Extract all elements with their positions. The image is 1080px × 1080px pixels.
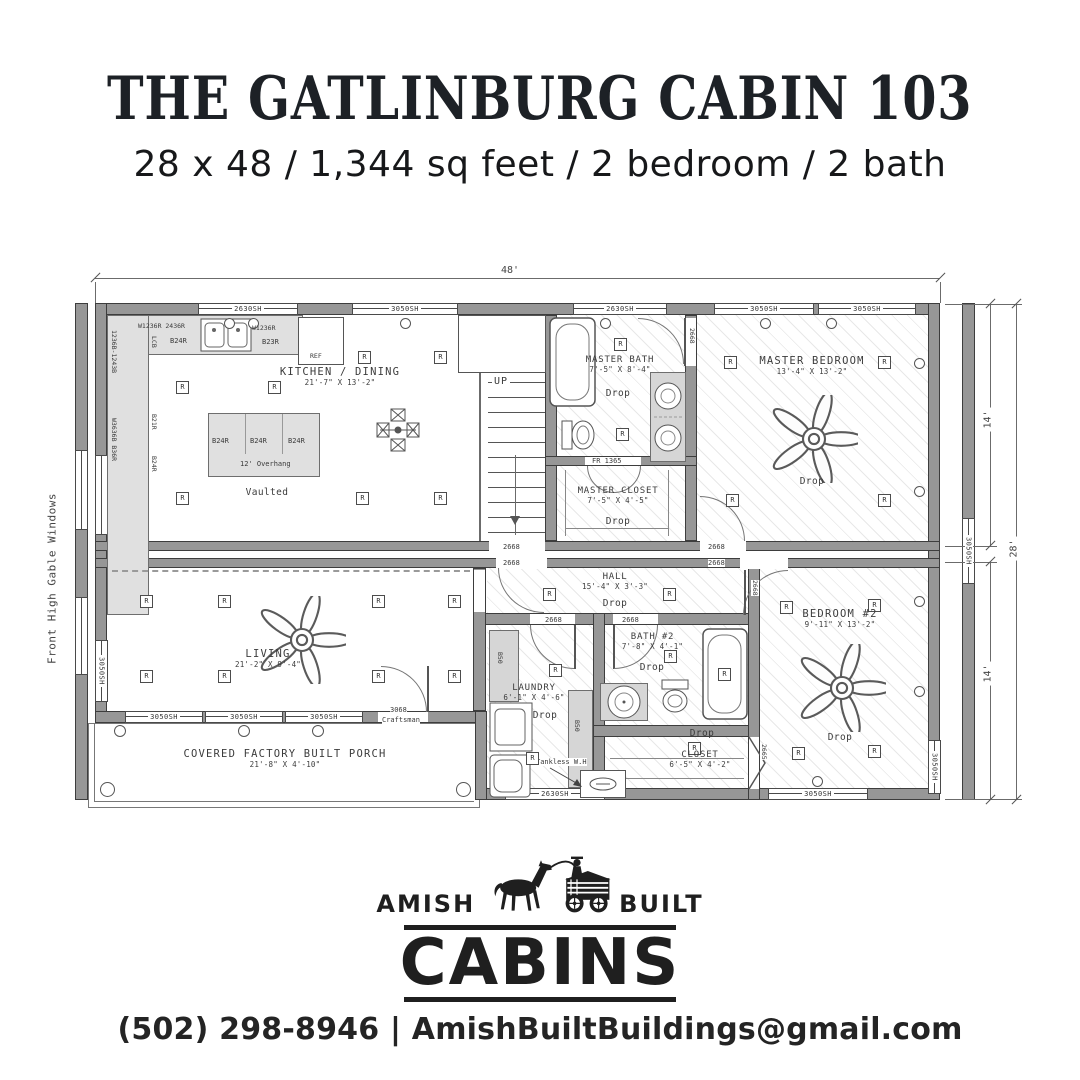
dim-half-top: 14' <box>983 407 994 431</box>
door-code: 2668 <box>503 543 520 551</box>
room-size: 6'-5" X 4'-2" <box>640 760 760 769</box>
logo-word-built: BUILT <box>619 892 703 916</box>
room-size: 13'-4" X 13'-2" <box>712 367 912 376</box>
room-size: 7'-5" X 4'-5" <box>548 496 688 505</box>
door-leaf <box>574 625 576 669</box>
recessed-light-symbol: R <box>434 492 447 505</box>
ceiling-note: Drop <box>578 516 658 527</box>
recessed-light-symbol: R <box>549 664 562 677</box>
recessed-light-symbol: R <box>614 338 627 351</box>
cabinet-label: B24R <box>212 437 229 445</box>
recessed-light-symbol: R <box>218 595 231 608</box>
cabinet-label: B24R <box>250 437 267 445</box>
tankless-label: Tankless W.H <box>536 758 587 766</box>
ceiling-note: Drop <box>505 710 585 721</box>
door-code: 2668 <box>545 616 562 624</box>
wall-light <box>224 318 235 329</box>
island-overhang-label: 12' Overhang <box>240 460 291 468</box>
room-name: MASTER CLOSET <box>548 486 688 496</box>
ceiling-fan <box>798 644 886 732</box>
dim-line-width <box>95 278 940 279</box>
dim-ext <box>945 799 1022 800</box>
logo-word-amish: AMISH <box>376 892 475 916</box>
recessed-light-symbol: R <box>434 351 447 364</box>
logo-top-row: AMISH <box>0 848 1080 924</box>
ceiling-note: Drop <box>612 662 692 673</box>
window-label: 3050SH <box>148 713 180 721</box>
room-size: 7'-8" X 4'-1" <box>600 642 705 651</box>
wall <box>928 303 940 800</box>
recessed-light-symbol: R <box>526 752 539 765</box>
wall-light <box>600 318 611 329</box>
stair-treads <box>488 382 545 534</box>
recessed-light-symbol: R <box>140 670 153 683</box>
door-gap <box>740 557 788 569</box>
door-code: 2668 <box>708 543 725 551</box>
room-label-living: LIVING 21'-2" X 9'-4" <box>178 648 358 669</box>
wall-light <box>760 318 771 329</box>
room-name: HALL <box>545 572 685 582</box>
ceiling-note: Drop <box>575 598 655 609</box>
wall <box>475 711 487 800</box>
room-label-hall: HALL 15'-4" X 3'-3" <box>545 572 685 591</box>
window-label: 3050SH <box>965 535 973 567</box>
kitchen-fan-light <box>376 408 420 452</box>
window-label: 3050SH <box>931 751 939 783</box>
recessed-light-symbol: R <box>726 494 739 507</box>
ceiling-fan <box>258 596 346 684</box>
front-door-type: Craftsman <box>382 716 420 724</box>
window-3050sh: 3050SH <box>95 640 108 702</box>
room-size: 9'-11" X 13'-2" <box>750 620 930 629</box>
cabinet-label: B50 <box>496 652 504 664</box>
window-3050sh: 3050SH <box>962 518 975 584</box>
cabinet-label: B24R <box>288 437 305 445</box>
door-gap <box>474 570 485 612</box>
recessed-light-symbol: R <box>218 670 231 683</box>
recessed-light-symbol: R <box>372 670 385 683</box>
door-code: 2668 <box>751 580 759 596</box>
window-3050sh: 3050SH <box>285 711 363 723</box>
room-label-closet2: CLOSET 6'-5" X 4'-2" <box>640 750 760 769</box>
gable-window <box>75 450 88 530</box>
cabinet-label: B24R <box>150 456 158 472</box>
window-3050sh: 3050SH <box>125 711 203 723</box>
wall-light <box>826 318 837 329</box>
stair-wall <box>479 373 481 541</box>
gable-note: Front High Gable Windows <box>46 489 59 669</box>
tankless-arrow <box>548 766 588 792</box>
logo-word-cabins: CABINS <box>0 931 1080 996</box>
porch-light <box>312 725 324 737</box>
dim-total: 28' <box>1009 536 1020 560</box>
cabinet-label: W1236R <box>252 324 275 332</box>
room-name: KITCHEN / DINING <box>230 366 450 378</box>
room-label-laundry: LAUNDRY 6'-1" X 4'-6" <box>486 683 582 702</box>
bath2-sink <box>604 684 644 720</box>
door-code: 2668 <box>688 328 696 344</box>
contact-email: AmishBuiltBuildings@gmail.com <box>412 1012 963 1047</box>
window-2630sh: 2630SH <box>573 303 667 315</box>
window-3050sh: 3050SH <box>928 740 941 794</box>
window-label: 3050SH <box>389 305 421 313</box>
cabinet-label: W3636B B36R <box>110 418 118 461</box>
window-2630sh: 2630SH <box>198 303 298 315</box>
recessed-light-symbol: R <box>176 381 189 394</box>
room-label-master-closet: MASTER CLOSET 7'-5" X 4'-5" <box>548 486 688 505</box>
porch-post <box>456 782 471 797</box>
stair-direction-arrow <box>510 516 520 525</box>
dim-ext <box>95 282 96 303</box>
wall-light <box>400 318 411 329</box>
wall-light <box>914 686 925 697</box>
recessed-light-symbol: R <box>356 492 369 505</box>
ceiling-note: Drop <box>662 728 742 739</box>
master-bath-toilet <box>560 415 596 457</box>
recessed-light-symbol: R <box>358 351 371 364</box>
contact-separator: | <box>390 1012 401 1047</box>
closet-shelf <box>565 528 669 529</box>
room-size: 6'-1" X 4'-6" <box>486 693 582 702</box>
room-name: LAUNDRY <box>486 683 582 693</box>
wall-light <box>812 776 823 787</box>
room-name: BEDROOM #2 <box>750 608 930 620</box>
cabinet-label: B23R <box>262 338 279 346</box>
flyer-canvas: THE GATLINBURG CABIN 103 28 x 48 / 1,344… <box>0 0 1080 1080</box>
door-code: 2668 <box>622 616 639 624</box>
closet-shelf <box>610 778 744 779</box>
gable-window <box>75 597 88 675</box>
ceiling-note: Drop <box>772 476 852 487</box>
cabinet-label: 1236B-1243B <box>110 330 118 373</box>
wall-light <box>914 358 925 369</box>
recessed-light-symbol: R <box>616 428 629 441</box>
stair-up-label: UP <box>492 376 510 387</box>
window-label: 3050SH <box>228 713 260 721</box>
island-divider <box>245 414 246 454</box>
recessed-light-symbol: R <box>140 595 153 608</box>
door-code: 2665 <box>760 744 768 760</box>
room-label-master-bath: MASTER BATH 7'-5" X 8'-4" <box>550 355 690 374</box>
room-label-master-bedroom: MASTER BEDROOM 13'-4" X 13'-2" <box>712 355 912 376</box>
ceiling-note: Vaulted <box>222 487 312 498</box>
window-3050sh: 3050SH <box>768 788 868 800</box>
recessed-light-symbol: R <box>176 492 189 505</box>
room-name: MASTER BEDROOM <box>712 355 912 367</box>
refrigerator-label: REF <box>310 352 322 360</box>
room-name: BATH #2 <box>600 632 705 642</box>
window-label: 3050SH <box>308 713 340 721</box>
window-label: 3050SH <box>98 655 106 687</box>
door-leaf <box>744 570 746 615</box>
front-door-code: 3068 <box>390 706 407 714</box>
recessed-light-symbol: R <box>868 745 881 758</box>
dim-ext <box>940 282 941 303</box>
room-label-bath2: BATH #2 7'-8" X 4'-1" <box>600 632 705 651</box>
room-label-kitchen: KITCHEN / DINING 21'-7" X 13'-2" <box>230 366 450 387</box>
ceiling-break-line <box>112 570 470 572</box>
recessed-light-symbol: R <box>448 595 461 608</box>
framed-opening-label: FR 1365 <box>592 457 622 465</box>
room-name: CLOSET <box>640 750 760 760</box>
room-name: COVERED FACTORY BUILT PORCH <box>135 748 435 760</box>
room-label-porch: COVERED FACTORY BUILT PORCH 21'-8" X 4'-… <box>135 748 435 769</box>
ceiling-note: Drop <box>578 388 658 399</box>
window-label: 2630SH <box>232 305 264 313</box>
horse-and-wagon-icon <box>481 848 613 924</box>
room-label-bedroom2: BEDROOM #2 9'-11" X 13'-2" <box>750 608 930 629</box>
door-leaf <box>427 666 429 712</box>
ceiling-fan <box>770 395 858 483</box>
dim-half-bottom: 14' <box>983 661 994 685</box>
window-label: 3050SH <box>748 305 780 313</box>
recessed-light-symbol: R <box>878 494 891 507</box>
window-label: 3050SH <box>802 790 834 798</box>
window-label: 2630SH <box>604 305 636 313</box>
recessed-light-symbol: R <box>372 595 385 608</box>
room-size: 7'-5" X 8'-4" <box>550 365 690 374</box>
door-code: 2668 <box>503 559 520 567</box>
dim-ext <box>945 304 1022 305</box>
porch-light <box>114 725 126 737</box>
cabinet-label: B24R <box>170 337 187 345</box>
window-3050sh: 3050SH <box>205 711 283 723</box>
tankless-water-heater-glyph <box>588 776 618 792</box>
door-code: 2668 <box>708 559 725 567</box>
window-3050sh: 3050SH <box>352 303 458 315</box>
contact-line: (502) 298-8946 | AmishBuiltBuildings@gma… <box>0 1012 1080 1047</box>
recessed-light-symbol: R <box>792 747 805 760</box>
bath2-toilet <box>658 678 698 714</box>
wall-light <box>914 486 925 497</box>
stair-landing <box>458 315 546 373</box>
brand-logo: AMISH <box>0 848 1080 1003</box>
room-size: 15'-4" X 3'-3" <box>545 582 685 591</box>
porch-light <box>238 725 250 737</box>
contact-phone: (502) 298-8946 <box>117 1012 379 1047</box>
recessed-light-symbol: R <box>448 670 461 683</box>
recessed-light-symbol: R <box>718 668 731 681</box>
wall-light <box>914 596 925 607</box>
cabinet-label: B21R <box>150 414 158 430</box>
cabinet-label: B50 <box>573 720 581 732</box>
window-3050sh: 3050SH <box>818 303 916 315</box>
window-3050sh: 3050SH <box>714 303 814 315</box>
room-size: 21'-7" X 13'-2" <box>230 378 450 387</box>
room-size: 21'-8" X 4'-10" <box>135 760 435 769</box>
island-divider <box>282 414 283 454</box>
cabinet-label: W1236R 2436R <box>138 322 185 330</box>
gable-wall-left <box>75 303 88 800</box>
dim-width: 48' <box>498 265 522 276</box>
ceiling-note: Drop <box>800 732 880 743</box>
room-size: 21'-2" X 9'-4" <box>178 660 358 669</box>
porch-post <box>100 782 115 797</box>
cabinet-label: LCB <box>150 336 158 348</box>
window-label: 3050SH <box>851 305 883 313</box>
room-name: MASTER BATH <box>550 355 690 365</box>
room-name: LIVING <box>178 648 358 660</box>
